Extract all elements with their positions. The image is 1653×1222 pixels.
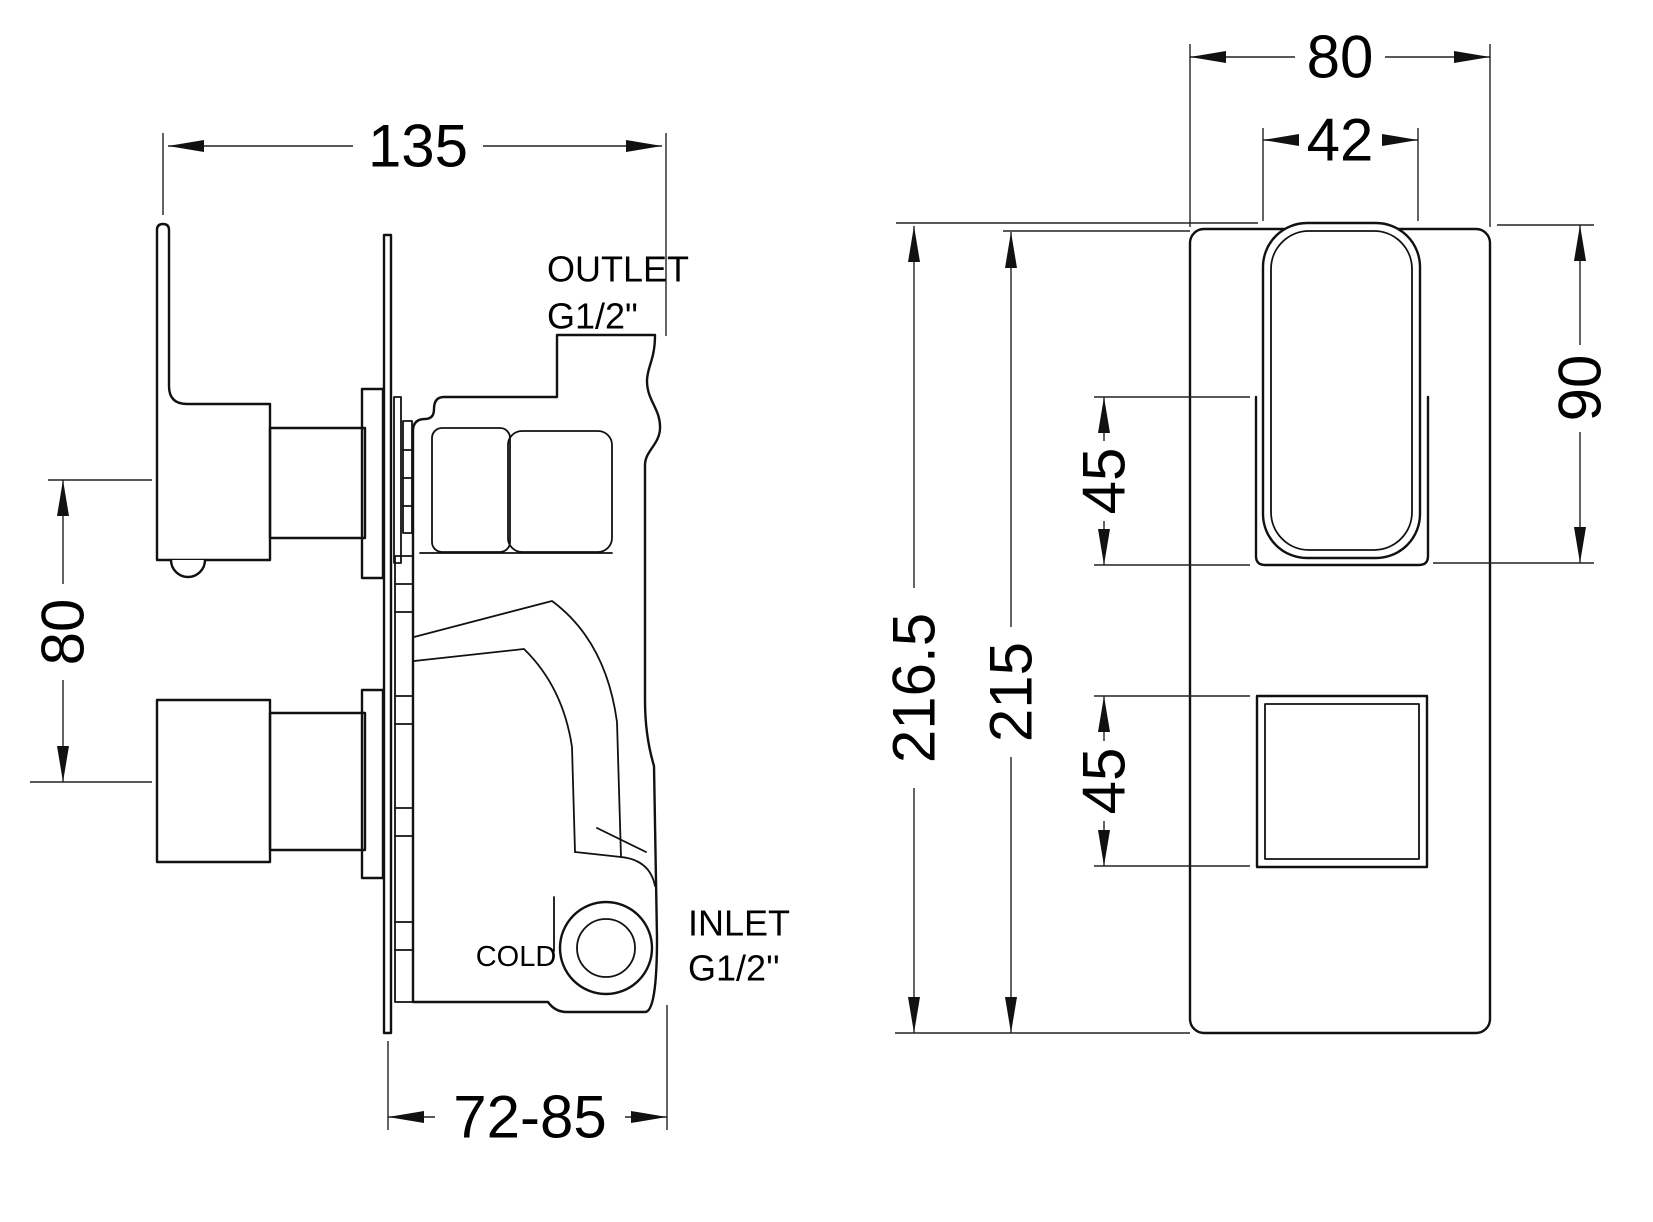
dim-215-arrow-bottom: [1005, 997, 1017, 1033]
dim-45-upper-arrow-top: [1098, 397, 1110, 433]
side-lower-ribbed-strip: [395, 556, 413, 1002]
dim-42-arrow-left: [1263, 134, 1299, 146]
dim-216-5-arrow-top: [908, 226, 920, 262]
dim-lever-width-42: 42: [1263, 107, 1418, 222]
technical-drawing-page: OUTLET G1/2" INLET G1/2'' COLD 135 80: [0, 0, 1653, 1222]
dim-90-arrow-top: [1574, 225, 1586, 261]
side-funnel-inner: [414, 649, 575, 852]
front-lever-handle-outer: [1263, 223, 1420, 558]
shower-valve-dimension-drawing: OUTLET G1/2" INLET G1/2'' COLD 135 80: [0, 0, 1653, 1222]
side-view: OUTLET G1/2" INLET G1/2'' COLD: [157, 224, 790, 1033]
side-knob: [157, 700, 270, 862]
side-lever-handle-outline: [157, 224, 270, 560]
dim-handle-spacing-80: 80: [30, 480, 153, 782]
side-lever-stem: [270, 428, 365, 538]
dim-wall-depth-72-85: 72-85: [388, 1005, 667, 1151]
outlet-label: OUTLET: [547, 249, 689, 290]
inlet-thread-label: G1/2'': [688, 948, 780, 989]
side-upper-ribs: [403, 450, 412, 506]
dim-front-80-arrow-right: [1454, 51, 1490, 63]
side-inlet-port-outer: [560, 902, 652, 994]
dim-front-80-value: 80: [1307, 24, 1374, 91]
side-funnel-base: [575, 828, 646, 857]
side-lower-ribs: [395, 584, 413, 950]
dim-80-arrow-top: [57, 480, 69, 516]
dim-216-5-value: 216.5: [881, 613, 948, 763]
dim-front-80-arrow-left: [1190, 51, 1226, 63]
dim-215-arrow-top: [1005, 232, 1017, 268]
side-cartridge-left: [432, 428, 510, 552]
side-inlet-port-inner: [577, 919, 635, 977]
side-upper-ribbed-strip: [403, 421, 412, 533]
dim-45-lower-value: 45: [1071, 748, 1138, 815]
dim-42-value: 42: [1307, 107, 1374, 174]
dim-72-85-arrow-left: [388, 1111, 424, 1123]
outlet-thread-label: G1/2": [547, 296, 638, 337]
dim-90-arrow-bottom: [1574, 527, 1586, 563]
front-temp-knob-outer: [1257, 696, 1427, 867]
side-lever-pivot-bump: [171, 560, 205, 577]
dim-80-arrow-bottom: [57, 746, 69, 782]
side-funnel-outer: [414, 601, 621, 857]
side-knob-stem: [270, 713, 365, 850]
dim-45-lower-arrow-bottom: [1098, 830, 1110, 866]
cold-port-label: COLD: [476, 941, 557, 973]
dim-45-upper-arrow-bottom: [1098, 529, 1110, 565]
side-wall-plate: [384, 235, 391, 1033]
front-view: [1190, 223, 1490, 1033]
dim-45-upper-value: 45: [1071, 448, 1138, 515]
dim-215-value: 215: [978, 642, 1045, 742]
dim-plate-height-215: 215: [978, 231, 1191, 1033]
dim-45-lower-arrow-top: [1098, 696, 1110, 732]
dim-42-arrow-right: [1382, 134, 1418, 146]
dim-135-value: 135: [368, 113, 468, 180]
side-upper-gasket-strip: [394, 397, 401, 563]
inlet-label: INLET: [688, 903, 790, 944]
side-cartridge-right: [508, 431, 612, 552]
dim-216-5-arrow-bottom: [908, 997, 920, 1033]
dim-90-value: 90: [1547, 355, 1614, 422]
dim-72-85-arrow-right: [631, 1111, 667, 1123]
dim-135-arrow-right: [626, 140, 662, 152]
dim-72-85-value: 72-85: [453, 1084, 606, 1151]
side-valve-body-outline: [413, 335, 660, 1012]
side-inlet-elbow: [554, 857, 655, 951]
dim-135-arrow-left: [168, 140, 204, 152]
dim-80-value: 80: [30, 599, 97, 666]
